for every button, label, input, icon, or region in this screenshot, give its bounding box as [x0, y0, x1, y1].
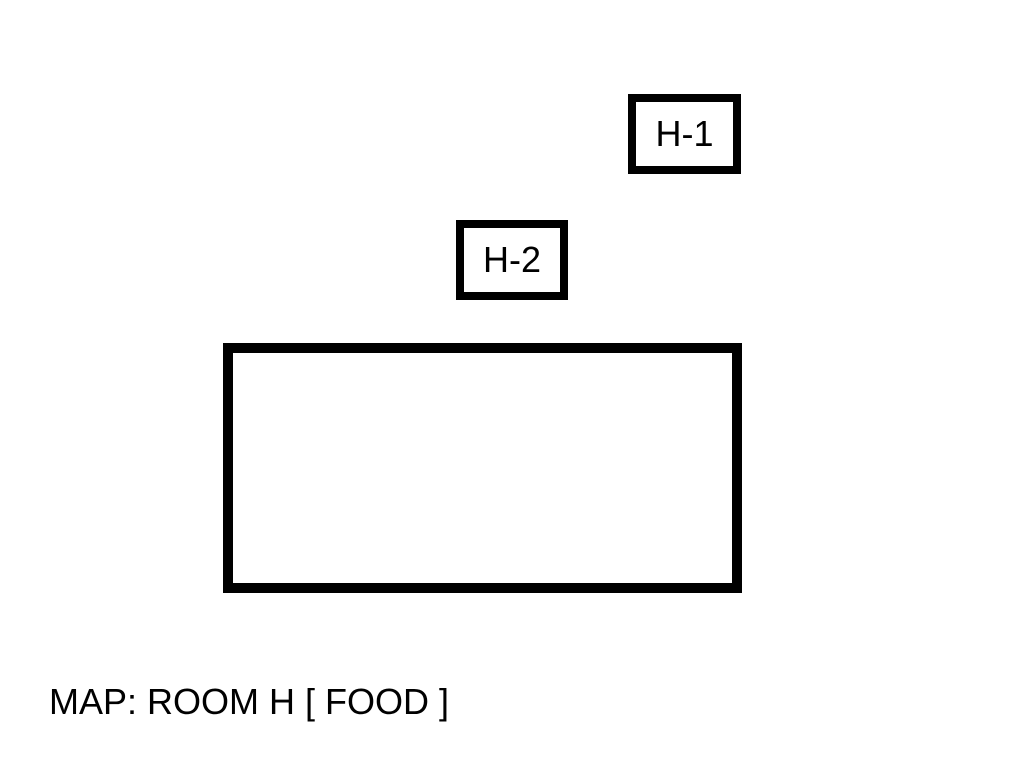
map-canvas: H-1 H-2 MAP: ROOM H [ FOOD ]: [0, 0, 1024, 768]
room-box-h2: H-2: [456, 220, 568, 300]
room-label-h1: H-1: [655, 116, 713, 152]
map-title: MAP: ROOM H [ FOOD ]: [49, 684, 449, 720]
room-label-h2: H-2: [483, 242, 541, 278]
room-box-main: [223, 343, 742, 593]
room-box-h1: H-1: [628, 94, 741, 174]
